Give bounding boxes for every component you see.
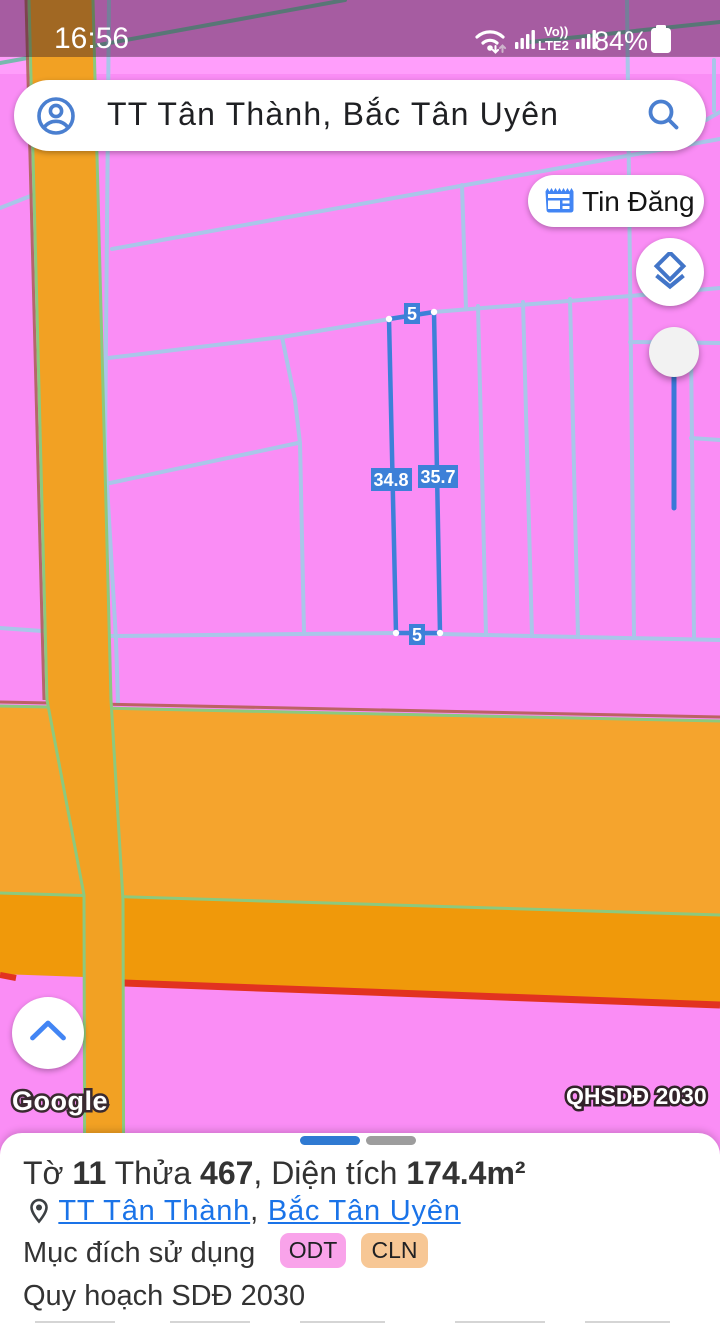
svg-text:QHSDĐ 2030: QHSDĐ 2030	[566, 1083, 707, 1109]
svg-text:5: 5	[412, 625, 422, 645]
svg-text:LTE2: LTE2	[538, 38, 569, 53]
svg-text:5: 5	[407, 304, 417, 324]
svg-text:35.7: 35.7	[420, 467, 455, 487]
svg-text:Google: Google	[12, 1086, 108, 1116]
svg-text:84%: 84%	[594, 26, 648, 56]
svg-text:Vo)): Vo))	[544, 24, 568, 39]
svg-text:34.8: 34.8	[373, 470, 408, 490]
